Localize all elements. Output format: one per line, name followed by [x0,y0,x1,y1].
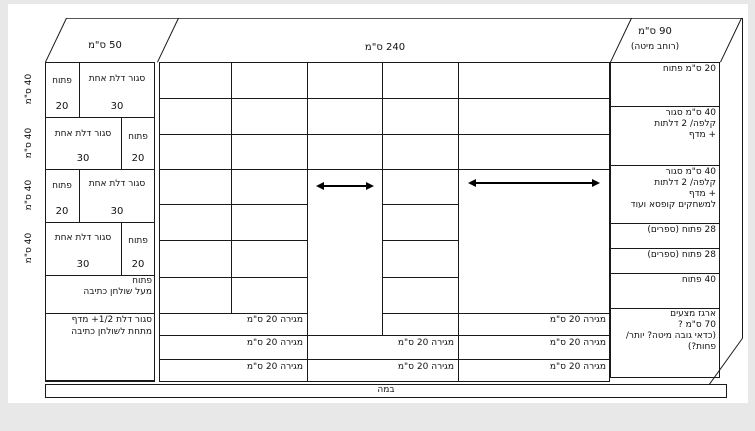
grid-line [159,240,307,241]
shelf-row-label: קלפה/ 2 דלתות [613,119,716,130]
cell-dim-30: 30 [45,259,121,270]
drawer-label: מגירה 20 ס"מ [460,338,606,349]
grid-line [382,313,610,314]
linen-box-label: פחות?) [613,342,716,353]
grid-line [45,117,155,118]
span-arrow-icon [468,177,600,189]
height-label-40cm: 40 ס"מ [24,118,36,168]
dim-label-bed-width: (רוחב מיטה) [600,42,710,53]
shelf-row-label: 40 ס"מ סגור [613,167,716,178]
cell-dim-20: 20 [121,153,155,164]
drawer-label: מגירה 20 ס"מ [310,338,454,349]
shelf-row-label: 28 פתוח (ספרים) [613,225,716,236]
top-back-edge-line [66,18,742,19]
arrow-line [473,182,595,184]
linen-box-label: ארגז מצעים [613,309,716,320]
arrowhead-right-icon [592,179,600,187]
height-label-40cm: 40 ס"מ [24,223,36,273]
grid-line [382,277,458,278]
cell-label-open-above-desk: מעל שולחן כתיבה [47,287,152,298]
shelf-row-label: למשחקים קופסא ועוד [613,200,716,211]
cell-label-open: פתוח [121,236,155,247]
middle-cabinet-outline [159,62,610,382]
grid-line [458,62,459,382]
right-back-edge-line [742,18,743,338]
shelf-row-label: + מדף [613,189,716,200]
grid-line [45,169,155,170]
cell-label-closed-one-door: סגור דלת אחת [45,233,121,244]
grid-line [382,240,458,241]
shelf-row-label: + מדף [613,130,716,141]
drawer-label: מגירה 20 ס"מ [460,315,606,326]
cell-label-open: פתוח [45,76,79,87]
height-label-40cm: 40 ס"מ [24,64,36,114]
cell-label-closed-one-door: סגור דלת אחת [45,129,121,140]
arrowhead-right-icon [366,182,374,190]
grid-line [159,134,610,135]
cell-label-open: פתוח [121,132,155,143]
grid-line [610,106,720,107]
drawer-label: מגירה 20 ס"מ [162,315,303,326]
drawer-label: מגירה 20 ס"מ [162,338,303,349]
grid-line [159,169,610,170]
shelf-row-label: 20 ס"מ פתוח [613,64,716,75]
cell-label-closed-below-desk: סגור דלת 1/2+ מדף [47,315,152,326]
grid-line [610,248,720,249]
furniture-plan-diagram: 50 ס"מ 240 ס"מ 90 ס"מ (רוחב מיטה) 40 ס"מ… [0,0,755,431]
grid-line [307,62,308,382]
cell-label-closed-one-door: סגור דלת אחת [79,179,155,190]
drawer-label: מגירה 20 ס"מ [162,362,303,373]
grid-line [159,277,307,278]
grid-line [382,62,383,335]
cell-dim-20: 20 [45,101,79,112]
drawer-label: מגירה 20 ס"מ [460,362,606,373]
grid-line [610,165,720,166]
grid-line [159,313,307,314]
cell-dim-20: 20 [45,206,79,217]
grid-line [159,359,610,360]
cell-label-open-above-desk: פתוח [47,276,152,287]
cell-dim-30: 30 [79,101,155,112]
cell-label-closed-one-door: סגור דלת אחת [79,74,155,85]
shelf-row-label: קלפה/ 2 דלתות [613,178,716,189]
span-arrow-icon [316,180,374,192]
grid-line [159,204,307,205]
linen-box-label: (כדאי גובה מיטה? יותר/ [613,331,716,342]
drawer-label: מגירה 20 ס"מ [310,362,454,373]
grid-line [45,313,155,314]
grid-line [610,273,720,274]
grid-line [159,335,610,336]
cell-dim-30: 30 [79,206,155,217]
dim-label-90cm: 90 ס"מ [600,26,710,37]
linen-box-label: 70 ס"מ ? [613,320,716,331]
grid-line [382,204,458,205]
height-label-40cm: 40 ס"מ [24,170,36,220]
cell-label-closed-below-desk: מתחת לשולחן כתיבה [47,327,152,338]
cell-label-open: פתוח [45,181,79,192]
shelf-row-label: 40 ס"מ סגור [613,108,716,119]
grid-line [231,62,232,313]
cell-dim-20: 20 [121,259,155,270]
grid-line [159,98,610,99]
grid-line [610,223,720,224]
shelf-row-label: 40 פתוח [613,275,716,286]
dim-label-50cm: 50 ס"מ [60,40,150,51]
grid-line [45,222,155,223]
stage-label: במה [45,385,727,396]
shelf-row-label: 28 פתוח (ספרים) [613,250,716,261]
dim-label-240cm: 240 ס"מ [330,42,440,53]
arrow-line [321,185,369,187]
cell-dim-30: 30 [45,153,121,164]
